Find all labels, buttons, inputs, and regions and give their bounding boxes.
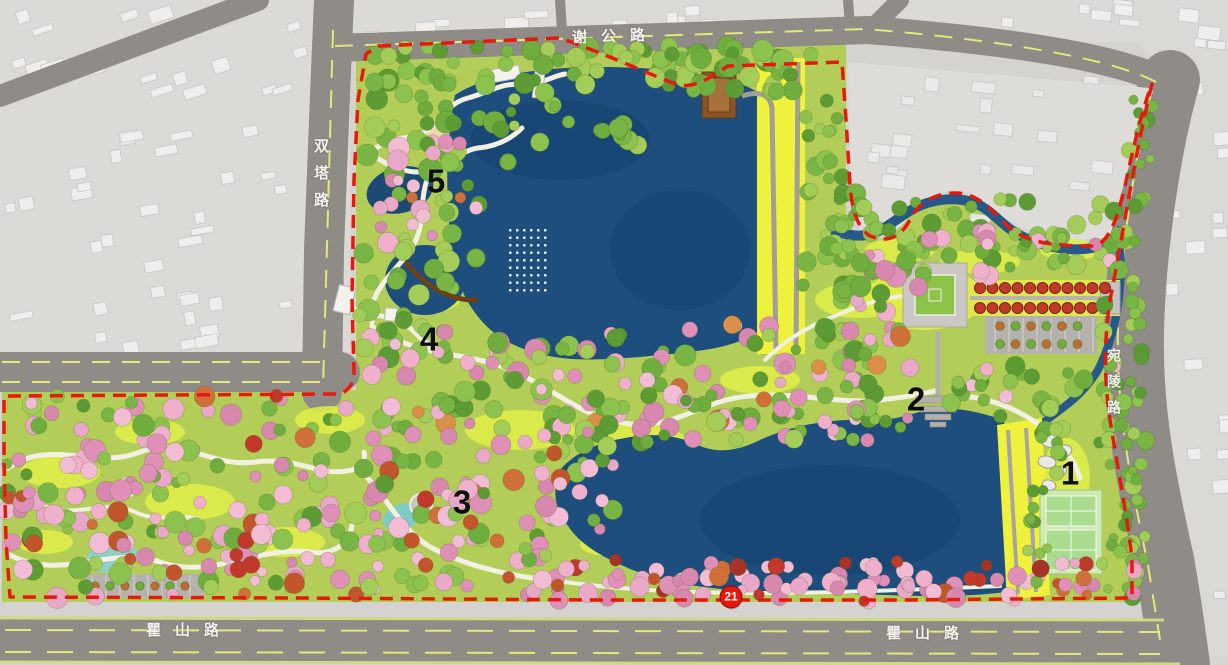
tree bbox=[437, 324, 453, 340]
tree bbox=[464, 418, 475, 429]
tree bbox=[534, 451, 546, 463]
tree bbox=[1042, 544, 1051, 553]
tree bbox=[393, 175, 403, 185]
tree bbox=[412, 505, 430, 523]
tree bbox=[390, 339, 401, 350]
tree bbox=[295, 428, 315, 448]
building bbox=[5, 202, 17, 213]
tree bbox=[1008, 567, 1027, 586]
building bbox=[971, 81, 995, 94]
tree bbox=[243, 556, 260, 573]
lake-dot bbox=[516, 282, 519, 285]
tree bbox=[858, 347, 872, 361]
lake-dot bbox=[530, 274, 533, 277]
tree bbox=[229, 502, 246, 519]
tree bbox=[1028, 502, 1039, 513]
tree bbox=[994, 193, 1007, 206]
tree bbox=[66, 487, 84, 505]
tree bbox=[596, 494, 609, 507]
tree bbox=[441, 190, 453, 202]
tree bbox=[946, 588, 966, 608]
tree bbox=[1076, 571, 1091, 586]
lake-dot bbox=[537, 229, 540, 232]
tree bbox=[681, 568, 699, 586]
tree bbox=[775, 377, 786, 388]
tree bbox=[397, 366, 416, 385]
tree bbox=[272, 529, 293, 550]
tree bbox=[44, 504, 65, 525]
tree bbox=[493, 121, 510, 138]
tree bbox=[1032, 560, 1049, 577]
tree bbox=[455, 192, 466, 203]
lake-upper-shade2 bbox=[610, 190, 750, 310]
tree bbox=[1139, 531, 1150, 542]
tree bbox=[245, 435, 262, 452]
tree bbox=[802, 129, 815, 142]
tree bbox=[354, 459, 373, 478]
tree bbox=[178, 531, 193, 546]
tree bbox=[547, 446, 562, 461]
red-tree bbox=[1025, 303, 1036, 314]
building bbox=[1217, 148, 1228, 159]
tree bbox=[1131, 474, 1142, 485]
lake-dot bbox=[516, 237, 519, 240]
square-plaza bbox=[903, 263, 967, 327]
tree bbox=[443, 224, 462, 243]
building bbox=[208, 296, 223, 311]
lake-dot bbox=[530, 244, 533, 247]
tree bbox=[432, 43, 447, 58]
tree bbox=[274, 485, 293, 504]
building bbox=[901, 96, 915, 106]
tree bbox=[675, 345, 697, 367]
tree bbox=[706, 390, 718, 402]
tree bbox=[91, 504, 107, 520]
tree bbox=[1114, 545, 1127, 558]
building bbox=[93, 302, 108, 316]
tree bbox=[373, 201, 387, 215]
tree bbox=[707, 412, 727, 432]
tree bbox=[98, 452, 111, 465]
tree bbox=[694, 365, 711, 382]
tree bbox=[152, 565, 168, 581]
building bbox=[1012, 165, 1035, 176]
tree bbox=[539, 549, 552, 562]
tree bbox=[21, 469, 33, 481]
red-tree bbox=[1062, 303, 1073, 314]
building bbox=[1197, 25, 1221, 40]
lake-dot bbox=[544, 259, 547, 262]
tree bbox=[89, 532, 110, 553]
tree bbox=[783, 68, 797, 82]
tree bbox=[551, 579, 564, 592]
tree bbox=[356, 144, 378, 166]
lake-dot bbox=[544, 244, 547, 247]
tree bbox=[903, 580, 916, 593]
tree bbox=[850, 404, 864, 418]
tree bbox=[890, 326, 910, 346]
tree bbox=[1059, 578, 1073, 592]
tree bbox=[756, 392, 771, 407]
tree bbox=[842, 358, 856, 372]
tree bbox=[834, 194, 845, 205]
tree bbox=[1022, 545, 1033, 556]
tree bbox=[729, 432, 744, 447]
tree bbox=[165, 443, 184, 462]
tree bbox=[752, 40, 774, 62]
tree bbox=[380, 48, 397, 65]
tree bbox=[418, 558, 433, 573]
tree bbox=[864, 333, 876, 345]
tree bbox=[820, 94, 833, 107]
lake-dot bbox=[509, 244, 512, 247]
building bbox=[1114, 4, 1133, 17]
tree bbox=[552, 53, 565, 66]
lake-dot bbox=[530, 267, 533, 270]
tree bbox=[77, 399, 90, 412]
tree bbox=[762, 328, 775, 341]
parking-tree bbox=[1042, 340, 1051, 349]
tree bbox=[320, 552, 335, 567]
tree bbox=[498, 57, 513, 72]
tree bbox=[364, 275, 379, 290]
tree bbox=[1055, 557, 1069, 571]
tree bbox=[865, 560, 882, 577]
pier-deck-4 bbox=[930, 422, 946, 427]
tree bbox=[1096, 558, 1108, 570]
building bbox=[1184, 359, 1203, 370]
tree bbox=[834, 219, 848, 233]
building bbox=[524, 10, 548, 19]
tree bbox=[1128, 466, 1137, 475]
tree bbox=[163, 398, 185, 420]
building bbox=[1185, 240, 1205, 254]
tree bbox=[362, 365, 382, 385]
parking-tree bbox=[136, 582, 144, 590]
tree bbox=[345, 502, 367, 524]
tree bbox=[575, 435, 594, 454]
tree bbox=[842, 239, 856, 253]
tree bbox=[856, 199, 873, 216]
tree bbox=[372, 561, 383, 572]
tree bbox=[274, 457, 289, 472]
tree bbox=[817, 387, 834, 404]
tree bbox=[901, 359, 919, 377]
parking-tree bbox=[996, 322, 1005, 331]
building bbox=[1166, 283, 1179, 296]
causeway-path-2 bbox=[796, 62, 798, 352]
tree bbox=[612, 568, 624, 580]
lake-dot bbox=[523, 244, 526, 247]
tree bbox=[892, 201, 908, 217]
tree bbox=[952, 376, 965, 389]
tree bbox=[314, 464, 328, 478]
tree bbox=[454, 381, 475, 402]
building bbox=[94, 332, 107, 344]
tree bbox=[355, 339, 373, 357]
tree bbox=[476, 75, 496, 95]
parking-tree bbox=[1073, 340, 1082, 349]
tree bbox=[518, 435, 532, 449]
tree bbox=[177, 473, 190, 486]
tree bbox=[790, 389, 807, 406]
tree bbox=[441, 428, 458, 445]
tree bbox=[125, 553, 137, 565]
tree bbox=[417, 491, 434, 508]
tree bbox=[604, 356, 620, 372]
tree bbox=[12, 453, 26, 467]
tree bbox=[78, 580, 93, 595]
tree bbox=[791, 345, 801, 355]
tree bbox=[109, 563, 131, 585]
building bbox=[1091, 160, 1113, 175]
red-tree bbox=[975, 303, 986, 314]
tree bbox=[535, 83, 554, 102]
tree bbox=[201, 558, 217, 574]
building bbox=[1212, 228, 1227, 238]
tree bbox=[1050, 466, 1064, 480]
lake-dot bbox=[509, 282, 512, 285]
tree bbox=[31, 418, 47, 434]
parking-tree bbox=[996, 340, 1005, 349]
tree bbox=[463, 515, 478, 530]
building bbox=[1083, 76, 1099, 85]
tree bbox=[395, 454, 410, 469]
parking-tree bbox=[1073, 322, 1082, 331]
tree bbox=[534, 466, 550, 482]
tree bbox=[506, 107, 516, 117]
tree bbox=[960, 235, 977, 252]
building bbox=[886, 166, 898, 174]
red-tree bbox=[1100, 283, 1111, 294]
red-tree bbox=[1062, 283, 1073, 294]
red-tree bbox=[1000, 283, 1011, 294]
tree bbox=[1121, 438, 1133, 450]
tree bbox=[630, 577, 650, 597]
building bbox=[184, 311, 196, 326]
red-tree bbox=[1037, 283, 1048, 294]
tree bbox=[753, 372, 768, 387]
tree bbox=[440, 544, 457, 561]
tree bbox=[262, 401, 277, 416]
tree bbox=[575, 75, 595, 95]
tree bbox=[147, 434, 167, 454]
tree bbox=[538, 429, 552, 443]
tree bbox=[599, 415, 618, 434]
tree bbox=[364, 117, 385, 138]
tree bbox=[768, 83, 785, 100]
tree bbox=[387, 272, 405, 290]
lake-dot bbox=[544, 289, 547, 292]
tree bbox=[413, 575, 428, 590]
tree bbox=[891, 556, 903, 568]
tree bbox=[110, 480, 132, 502]
tree bbox=[439, 397, 455, 413]
red-tree bbox=[1087, 283, 1098, 294]
tree bbox=[365, 73, 384, 92]
tree bbox=[859, 375, 877, 393]
lake-dot bbox=[537, 244, 540, 247]
tree bbox=[861, 433, 875, 447]
tree bbox=[942, 394, 960, 412]
tree bbox=[442, 77, 456, 91]
tree bbox=[196, 538, 211, 553]
lake-dot bbox=[523, 274, 526, 277]
tree bbox=[259, 494, 275, 510]
building bbox=[979, 98, 992, 113]
tree bbox=[768, 558, 785, 575]
lake-dot bbox=[523, 282, 526, 285]
tree bbox=[648, 573, 660, 585]
tree bbox=[519, 542, 532, 555]
tree bbox=[462, 179, 474, 191]
tree bbox=[1105, 460, 1115, 470]
tree bbox=[1129, 95, 1138, 104]
tree bbox=[797, 252, 817, 272]
lake-dot bbox=[516, 229, 519, 232]
tree bbox=[599, 590, 616, 607]
red-tree bbox=[1012, 303, 1023, 314]
tree bbox=[494, 420, 511, 437]
tree bbox=[1104, 584, 1113, 593]
map-canvas bbox=[0, 0, 1228, 665]
tree bbox=[38, 483, 58, 503]
red-tree bbox=[1050, 283, 1061, 294]
building bbox=[1091, 9, 1112, 21]
building bbox=[18, 196, 34, 211]
lake-dot bbox=[537, 274, 540, 277]
red-tree bbox=[1037, 303, 1048, 314]
tree bbox=[1038, 485, 1048, 495]
parking-tree bbox=[1042, 322, 1051, 331]
tree bbox=[682, 322, 698, 338]
tree bbox=[501, 45, 513, 57]
building bbox=[924, 77, 939, 92]
tree bbox=[763, 574, 782, 593]
tree bbox=[458, 479, 478, 499]
lake-dot bbox=[544, 237, 547, 240]
tree bbox=[230, 548, 243, 561]
tree bbox=[166, 565, 182, 581]
tree bbox=[60, 457, 77, 474]
parking-tree bbox=[1011, 340, 1020, 349]
tree bbox=[453, 137, 467, 151]
tree bbox=[965, 201, 977, 213]
tree bbox=[645, 68, 665, 88]
tree bbox=[274, 424, 286, 436]
tree bbox=[731, 407, 745, 421]
tree bbox=[415, 90, 428, 103]
tree bbox=[300, 551, 314, 565]
tree bbox=[1074, 370, 1093, 389]
parking-tree bbox=[1027, 340, 1036, 349]
tree bbox=[370, 510, 381, 521]
lake-dot bbox=[516, 267, 519, 270]
tree bbox=[785, 430, 804, 449]
lake-dot bbox=[530, 259, 533, 262]
tree bbox=[445, 115, 461, 131]
tree bbox=[578, 560, 589, 571]
tree bbox=[1128, 282, 1139, 293]
tree bbox=[846, 433, 859, 446]
tree bbox=[398, 62, 415, 79]
tree bbox=[1005, 262, 1015, 272]
tree bbox=[902, 413, 913, 424]
island bbox=[467, 249, 485, 267]
tree bbox=[1134, 387, 1146, 399]
tree bbox=[1024, 369, 1040, 385]
parking-tree bbox=[181, 582, 189, 590]
building bbox=[892, 133, 912, 147]
tree bbox=[1003, 374, 1018, 389]
tree bbox=[535, 496, 556, 517]
parking-tree bbox=[1058, 340, 1067, 349]
tree bbox=[567, 48, 586, 67]
tree bbox=[113, 408, 131, 426]
tree bbox=[25, 397, 37, 409]
tree bbox=[204, 580, 219, 595]
tree bbox=[562, 116, 575, 129]
tree bbox=[354, 243, 374, 263]
parking-lot bbox=[985, 316, 1097, 354]
tree bbox=[361, 578, 379, 596]
building bbox=[101, 234, 115, 248]
tree bbox=[729, 559, 746, 576]
lake-dot bbox=[537, 252, 540, 255]
red-tree bbox=[1075, 283, 1086, 294]
lake-dot bbox=[509, 289, 512, 292]
tree bbox=[540, 42, 555, 57]
tree bbox=[896, 251, 915, 270]
tree bbox=[1146, 155, 1155, 164]
tree bbox=[426, 146, 441, 161]
tree bbox=[394, 242, 412, 260]
tree bbox=[823, 173, 834, 184]
tree bbox=[691, 48, 712, 69]
tree bbox=[909, 278, 927, 296]
tree bbox=[999, 390, 1013, 404]
tree bbox=[552, 369, 564, 381]
tree bbox=[407, 179, 420, 192]
tree bbox=[404, 533, 420, 549]
tree bbox=[380, 322, 397, 339]
tree bbox=[572, 484, 588, 500]
tree bbox=[139, 465, 157, 483]
lake-dot bbox=[530, 282, 533, 285]
lake-dot bbox=[530, 229, 533, 232]
tree bbox=[194, 496, 207, 509]
building bbox=[1069, 181, 1089, 191]
tree bbox=[1049, 423, 1063, 437]
parking-tree bbox=[1058, 322, 1067, 331]
building bbox=[1213, 131, 1228, 145]
tree bbox=[330, 414, 342, 426]
tree bbox=[841, 322, 859, 340]
tree bbox=[25, 535, 42, 552]
tree bbox=[684, 431, 701, 448]
pier-deck-3 bbox=[925, 414, 951, 420]
tree bbox=[150, 513, 162, 525]
tree bbox=[1113, 378, 1125, 390]
building bbox=[1037, 130, 1057, 143]
tree bbox=[619, 377, 632, 390]
tree bbox=[723, 316, 741, 334]
tree bbox=[132, 414, 154, 436]
tree bbox=[1126, 563, 1142, 579]
tree bbox=[531, 350, 546, 365]
tree bbox=[536, 384, 547, 395]
building bbox=[274, 184, 287, 194]
